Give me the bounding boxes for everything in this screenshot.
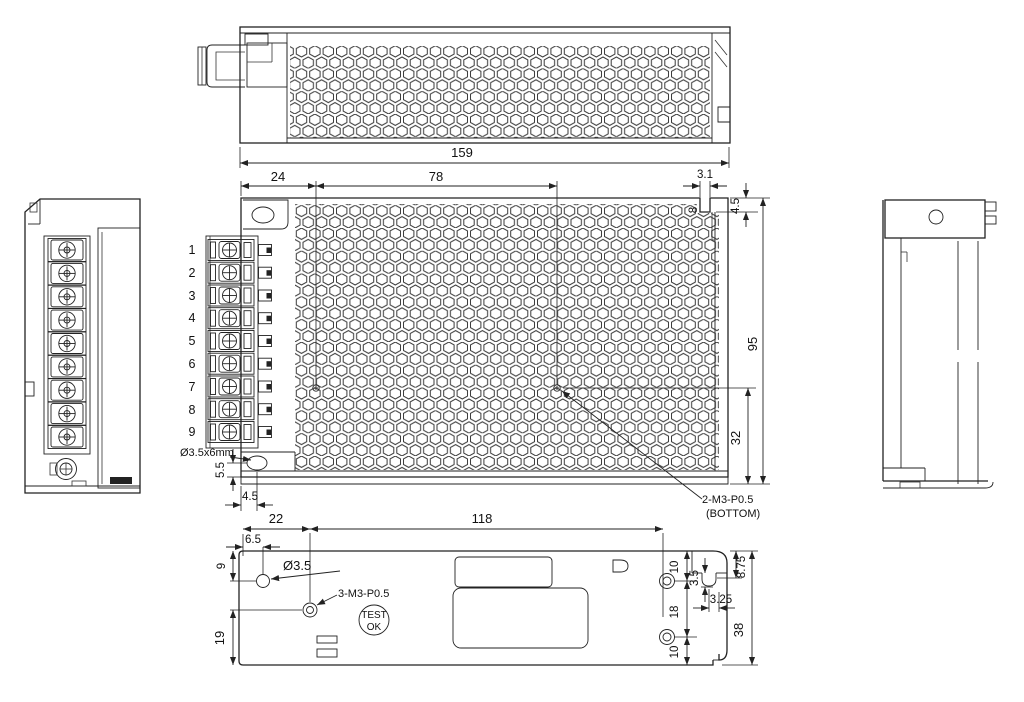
dim-10-bottom-label: 10: [669, 646, 681, 659]
terminal-5: 5: [189, 334, 196, 348]
top-left-clip: [198, 34, 287, 87]
dim-5-5-label: 5.5: [215, 462, 227, 478]
top-right-end: [712, 33, 730, 143]
dim-22: 22: [243, 511, 310, 602]
terminal-block: [206, 236, 272, 448]
dim-8-label: 8: [688, 207, 700, 213]
top-vent-pattern: [290, 46, 710, 138]
vent-slot-2: [317, 649, 337, 657]
oval-hole: [252, 207, 274, 223]
dim-10-bottom: 10: [669, 637, 687, 665]
dim-4-5-bottom: 4.5: [225, 472, 273, 511]
terminal-6: 6: [189, 357, 196, 371]
potentiometer: [50, 459, 77, 480]
drawing-canvas: 159: [0, 0, 1024, 702]
dim-10-top-label: 10: [669, 561, 681, 574]
side-terminal-strip: [44, 236, 90, 454]
slot-hole: [247, 456, 267, 470]
d-slot: [613, 560, 628, 572]
rivet-top: [660, 574, 675, 589]
front-view: 1 2 3 4 5 6 7 8 9 24: [180, 169, 770, 520]
dim-118-label: 118: [472, 511, 493, 526]
rear-hole: [929, 210, 943, 224]
side-view-right: [883, 200, 996, 488]
dim-118: 118: [310, 511, 663, 617]
dim-6-5-label: 6.5: [245, 534, 261, 546]
terminal-9: 9: [189, 425, 196, 439]
dim-3-25-label: 3.25: [710, 594, 732, 606]
dim-3-5-label: 3.5: [689, 570, 701, 586]
hole-3-5: [257, 575, 270, 588]
dim-159: 159: [240, 145, 729, 168]
slot-label: Ø3.5x6mm: [180, 447, 234, 459]
dim-18: 18: [669, 581, 697, 637]
dim-24-label: 24: [271, 169, 285, 184]
bottom-view: TEST OK 22 118 6.5 9 19: [212, 511, 758, 665]
dim-3-25: 3.25: [693, 589, 735, 612]
dim-3-1-label: 3.1: [697, 169, 713, 181]
label-area-small: [455, 557, 552, 587]
hole-3-5-callout: Ø3.5: [271, 558, 340, 579]
dim-8-75-label: 8.75: [736, 556, 748, 578]
dim-22-label: 22: [269, 511, 283, 526]
terminal-4: 4: [189, 311, 196, 325]
label-area-large: [453, 588, 588, 648]
mechanical-drawing: 159: [0, 0, 1024, 702]
terminal-numbers: 1 2 3 4 5 6 7 8 9: [189, 243, 196, 439]
vent-slot-1: [317, 636, 337, 643]
terminal-2: 2: [189, 266, 196, 280]
test-label: TEST: [361, 610, 387, 621]
m3-note-line2: (BOTTOM): [706, 508, 760, 520]
terminal-8: 8: [189, 403, 196, 417]
dim-6-5: 6.5: [226, 534, 280, 574]
dim-8-75: 8.75: [717, 551, 748, 578]
top-view: 159: [198, 27, 730, 168]
terminal-3: 3: [189, 289, 196, 303]
rivet-bottom: [660, 630, 675, 645]
dim-95-label: 95: [745, 337, 760, 351]
ok-label: OK: [367, 622, 382, 633]
dim-4-5-top-label: 4.5: [730, 198, 742, 214]
dim-9: 9: [216, 551, 256, 581]
dim-19-label: 19: [212, 631, 227, 645]
terminal-1: 1: [189, 243, 196, 257]
dim-32-label: 32: [728, 431, 743, 445]
dim-18-label: 18: [669, 606, 681, 619]
dim-4-5-bottom-label: 4.5: [242, 491, 258, 503]
side-view-left: [25, 199, 140, 493]
dim-19: 19: [212, 610, 302, 665]
side-connector-mark: [110, 477, 132, 484]
terminal-7: 7: [189, 380, 196, 394]
front-mount-tab: [243, 200, 288, 229]
m3-screw-hole: [303, 603, 317, 617]
dim-38-label: 38: [731, 623, 746, 637]
m3-note-line1: 2-M3-P0.5: [702, 494, 753, 506]
front-bottom-left: [241, 452, 295, 471]
dim-9-label: 9: [216, 563, 228, 569]
dim-3-1: 3.1: [683, 169, 727, 197]
hole-3-5-label: Ø3.5: [283, 558, 311, 573]
front-vent-pattern: [295, 204, 719, 470]
test-ok-button: TEST OK: [359, 605, 389, 635]
screw-callout: 3-M3-P0.5: [317, 588, 389, 605]
side-cover-panel: [98, 228, 140, 488]
dim-78-label: 78: [429, 169, 443, 184]
screw-note-label: 3-M3-P0.5: [338, 588, 389, 600]
dim-159-label: 159: [451, 145, 473, 160]
